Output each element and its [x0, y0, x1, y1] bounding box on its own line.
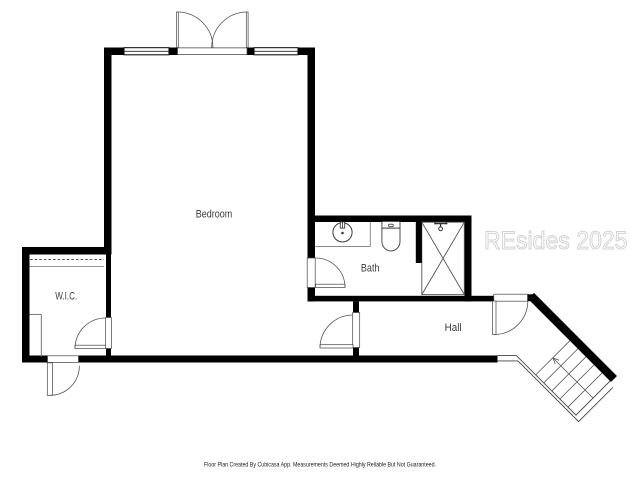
- svg-text:REsides 2025: REsides 2025: [484, 227, 628, 255]
- svg-text:Bedroom: Bedroom: [196, 208, 233, 220]
- svg-text:Floor Plan Created By Cubicasa: Floor Plan Created By Cubicasa App. Meas…: [204, 462, 436, 469]
- svg-text:Bath: Bath: [361, 263, 380, 275]
- svg-text:Hall: Hall: [445, 322, 462, 334]
- svg-text:W.I.C.: W.I.C.: [55, 290, 77, 302]
